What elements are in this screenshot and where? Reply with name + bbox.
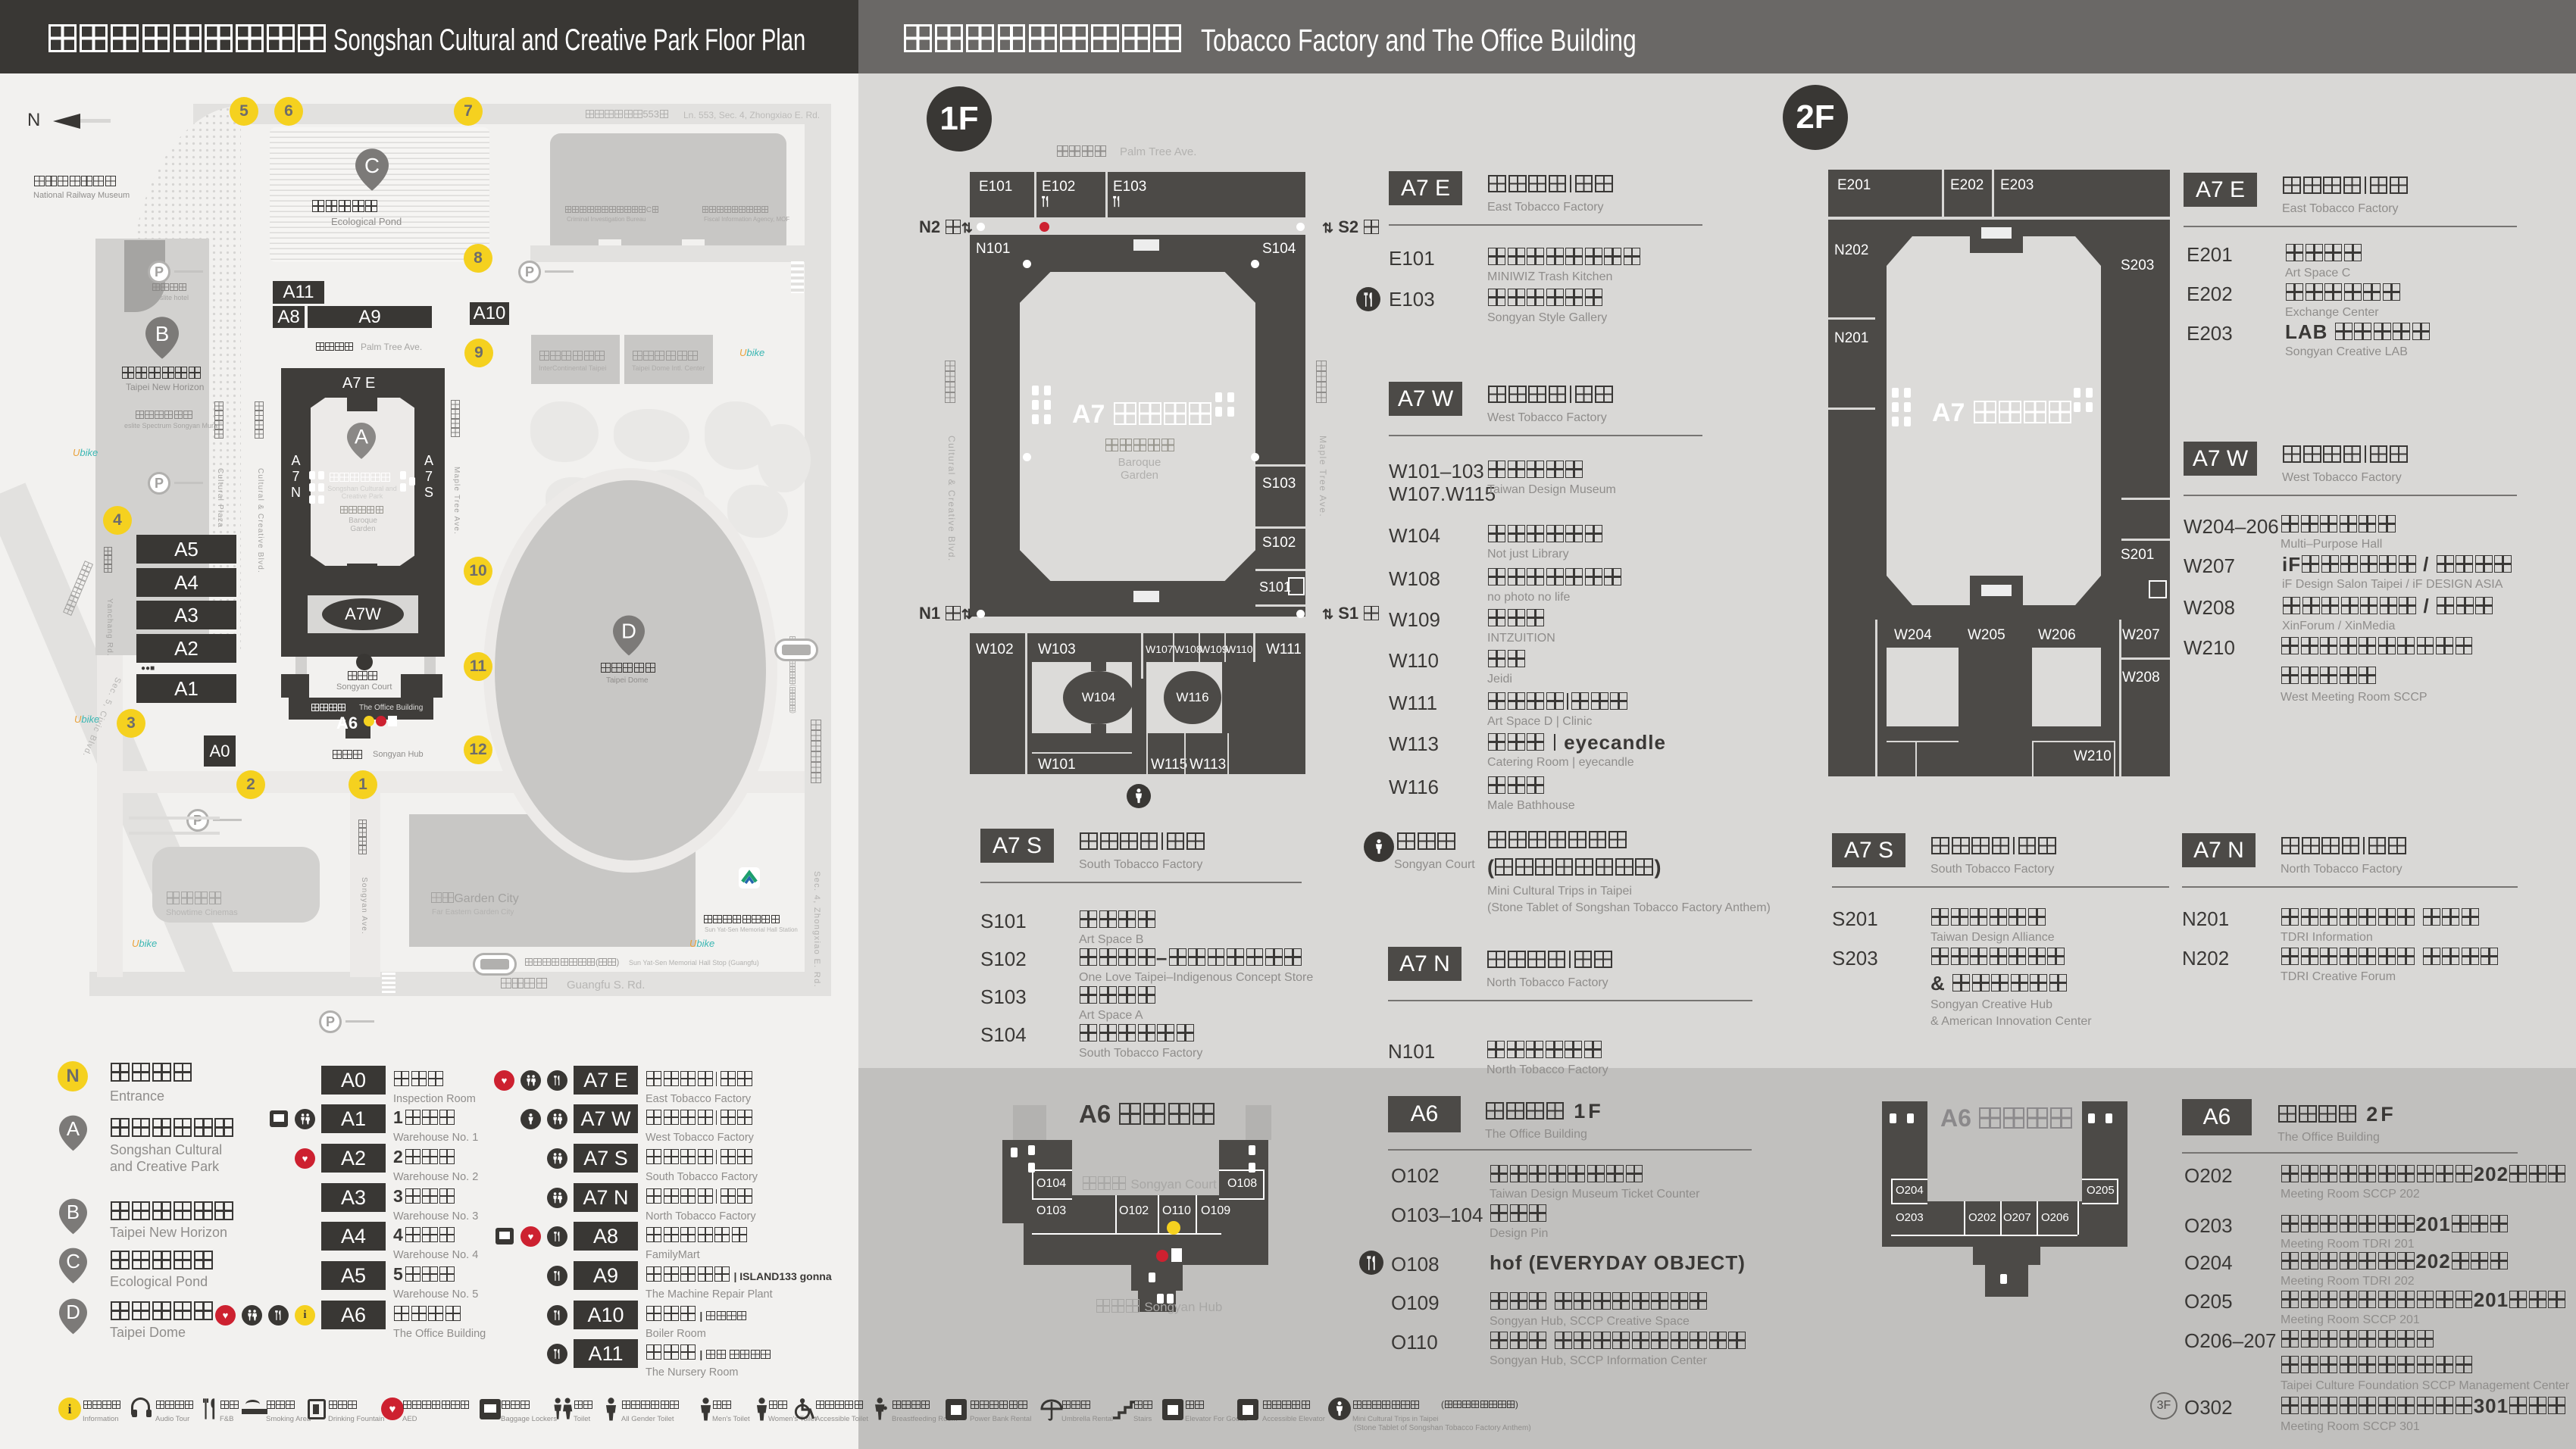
- svg-text:A: A: [355, 424, 369, 448]
- svg-text:C: C: [364, 154, 380, 177]
- svg-text:D: D: [66, 1302, 80, 1323]
- svg-text:C: C: [66, 1251, 80, 1273]
- svg-text:A: A: [67, 1119, 80, 1140]
- svg-text:B: B: [155, 322, 170, 345]
- svg-text:D: D: [621, 620, 636, 643]
- svg-text:B: B: [67, 1202, 80, 1223]
